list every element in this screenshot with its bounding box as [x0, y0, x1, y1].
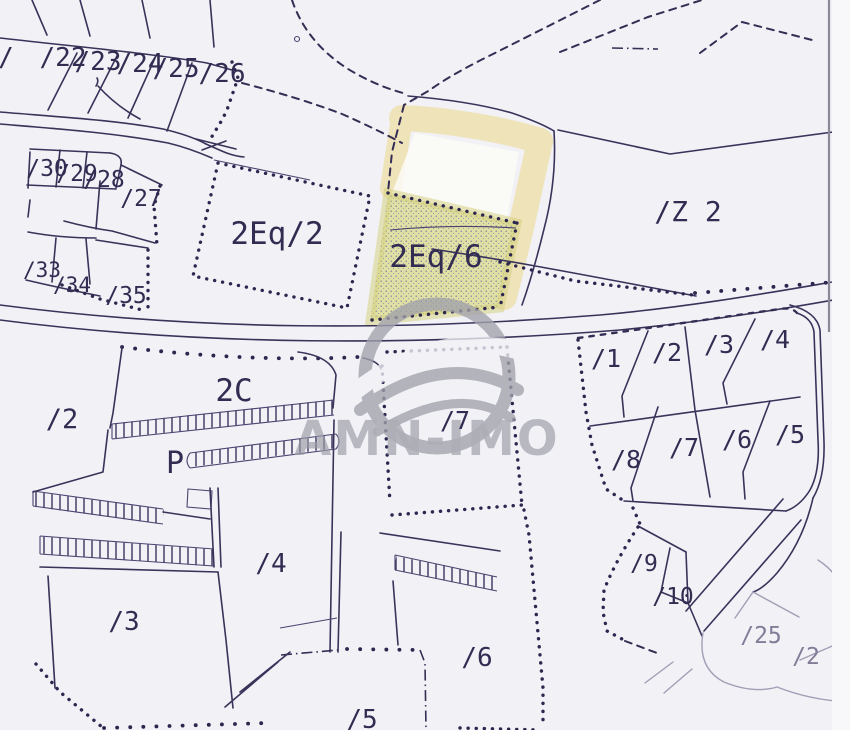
parcel-label: /34 [53, 273, 91, 297]
scan-edge [829, 0, 850, 730]
parcel-label: /7 [440, 406, 470, 435]
parcel-label: /4 [760, 325, 790, 354]
parcel-label: /9 [630, 551, 658, 577]
parcel-label: /4 [255, 549, 286, 579]
parcel-label: /3 [704, 330, 734, 359]
parcel-label: /5 [775, 420, 805, 449]
cadastral-map-scan: AMN-IMO //22/23/24/25/26/30/29/28/27/33/… [0, 0, 850, 730]
parcel-label: /Z 2 [654, 195, 721, 228]
parcel-label: /8 [611, 445, 641, 474]
parcel-label: /25 [740, 623, 782, 649]
parcel-label: /28 [83, 167, 125, 193]
parcel-label: /25 [153, 54, 200, 84]
map-drawing: AMN-IMO //22/23/24/25/26/30/29/28/27/33/… [0, 0, 850, 730]
parcel-label: /2 [652, 338, 682, 367]
parcel-label: P [166, 446, 184, 481]
parcel-label: 2Eq/2 [230, 216, 323, 252]
parcel-label: / [0, 43, 14, 73]
parcel-label: /1 [591, 344, 621, 373]
parcel-label: /7 [669, 433, 699, 462]
parcel-label: /6 [722, 425, 752, 454]
watermark-text: AMN-IMO [294, 411, 559, 467]
parcel-label: /5 [346, 705, 377, 730]
parcel-label: /3 [108, 607, 139, 637]
parcel-label: /10 [652, 584, 694, 610]
parcel-label: /2 [46, 404, 79, 435]
parcel-label: /6 [461, 643, 492, 673]
parcel-label: 2C [215, 373, 252, 409]
parcel-label: /26 [199, 59, 246, 89]
parcel-label: /23 [75, 47, 122, 77]
parcel-label: /27 [120, 186, 162, 212]
parcel-label: 2Eq/6 [389, 239, 482, 275]
parcel-label: /35 [105, 283, 147, 309]
parcel-label: /2 [792, 644, 820, 670]
